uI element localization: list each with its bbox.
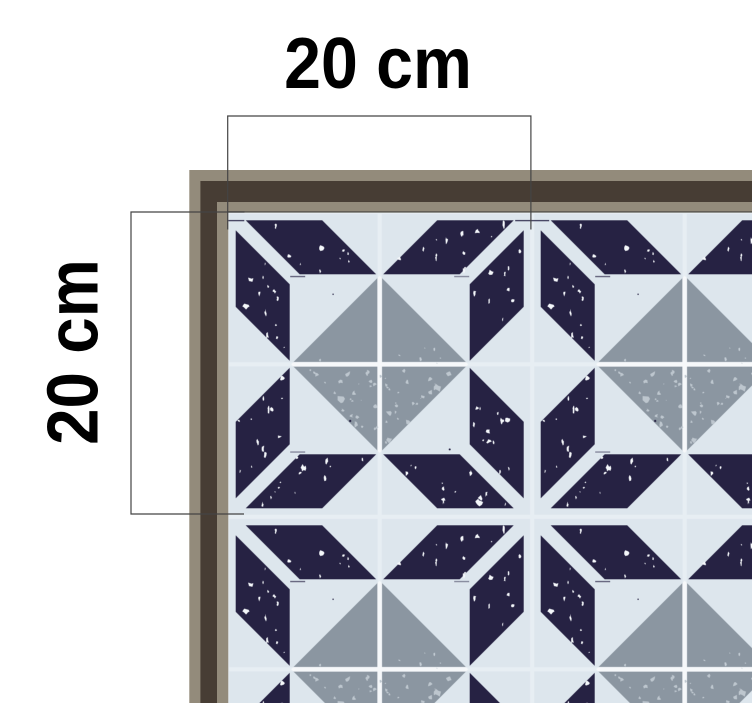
svg-text:20 cm: 20 cm: [284, 22, 472, 103]
svg-text:20 cm: 20 cm: [33, 259, 114, 445]
